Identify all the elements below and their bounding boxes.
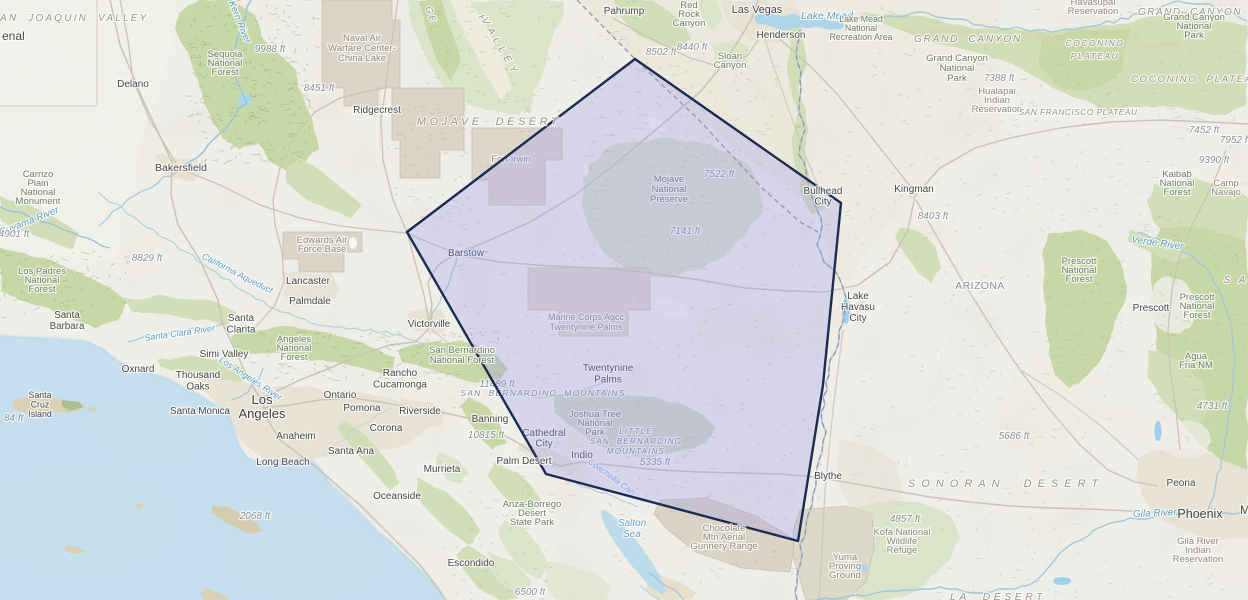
svg-text:AN JOAQUIN VALLEY: AN JOAQUIN VALLEY: [0, 13, 149, 24]
svg-text:6500 ft: 6500 ft: [515, 587, 547, 598]
svg-text:PrescottNationalForest: PrescottNationalForest: [1180, 292, 1215, 321]
svg-text:YumaProvingGround: YumaProvingGround: [829, 552, 861, 581]
svg-text:7388 ft: 7388 ft: [984, 73, 1016, 84]
svg-text:COCONINO PLATEAU: COCONINO PLATEAU: [1131, 74, 1248, 85]
svg-text:Edwards AirForce Base: Edwards AirForce Base: [297, 235, 348, 255]
svg-text:5686 ft: 5686 ft: [999, 431, 1031, 442]
svg-text:Banning: Banning: [472, 414, 509, 425]
svg-text:KaibabNationalForest: KaibabNationalForest: [1160, 169, 1195, 198]
svg-text:10815 ft: 10815 ft: [468, 430, 505, 441]
svg-text:S A: S A: [1224, 275, 1248, 286]
svg-text:Escondido: Escondido: [448, 558, 495, 569]
svg-text:HavasupaiReservation: HavasupaiReservation: [1068, 0, 1119, 17]
svg-text:Mes: Mes: [1240, 503, 1248, 517]
svg-text:Pahrump: Pahrump: [604, 6, 645, 17]
svg-text:Kingman: Kingman: [894, 184, 933, 195]
svg-text:LA DESERT: LA DESERT: [950, 591, 1046, 600]
svg-text:CampNavajo: CampNavajo: [1211, 178, 1241, 198]
svg-text:SantaClarita: SantaClarita: [227, 313, 256, 336]
svg-text:AngelesNationalForest: AngelesNationalForest: [277, 334, 312, 363]
svg-text:4857 ft: 4857 ft: [890, 514, 922, 525]
svg-text:8451 ft: 8451 ft: [304, 83, 336, 94]
svg-text:Bakersfield: Bakersfield: [155, 162, 207, 174]
svg-text:Palmdale: Palmdale: [289, 296, 331, 307]
svg-text:SequoiaNationalForest: SequoiaNationalForest: [208, 49, 244, 78]
svg-text:enal: enal: [2, 29, 25, 43]
svg-text:SAN FRANCISCO PLATEAU: SAN FRANCISCO PLATEAU: [1019, 107, 1138, 117]
svg-text:PrescottNationalForest: PrescottNationalForest: [1062, 256, 1097, 285]
svg-text:Corona: Corona: [370, 423, 403, 434]
svg-text:7952 ft: 7952 ft: [1220, 135, 1248, 146]
svg-text:Santa Ana: Santa Ana: [328, 446, 375, 457]
svg-text:Lancaster: Lancaster: [286, 276, 331, 287]
svg-text:Prescott: Prescott: [1133, 303, 1170, 314]
svg-text:9390 ft: 9390 ft: [1199, 155, 1231, 166]
svg-text:Riverside: Riverside: [399, 406, 441, 417]
svg-text:84 ft: 84 ft: [4, 413, 25, 424]
svg-text:SloanCanyon: SloanCanyon: [714, 51, 747, 71]
svg-text:8502 ft: 8502 ft: [646, 47, 678, 58]
svg-text:Palm Desert: Palm Desert: [496, 456, 551, 467]
svg-text:Henderson: Henderson: [757, 30, 806, 41]
svg-text:Las Vegas: Las Vegas: [732, 4, 783, 16]
svg-text:Murrieta: Murrieta: [424, 464, 461, 475]
svg-text:Ridgecrest: Ridgecrest: [353, 105, 401, 116]
svg-text:Oceanside: Oceanside: [373, 491, 421, 502]
svg-text:Victorville: Victorville: [408, 319, 451, 330]
svg-text:Gila River: Gila River: [1133, 507, 1178, 520]
svg-text:ARIZONA: ARIZONA: [955, 280, 1004, 292]
svg-text:Anaheim: Anaheim: [276, 431, 315, 442]
svg-text:GRAND CANYON: GRAND CANYON: [914, 34, 1022, 45]
svg-text:MOJAVE DESERT: MOJAVE DESERT: [417, 116, 561, 128]
svg-text:Peoria: Peoria: [1167, 478, 1196, 489]
svg-text:Pomona: Pomona: [343, 403, 381, 414]
svg-text:San BernardinoNational Forest: San BernardinoNational Forest: [429, 345, 495, 366]
svg-text:8403 ft: 8403 ft: [918, 211, 950, 222]
svg-text:8440 ft: 8440 ft: [677, 42, 709, 53]
svg-text:SONORAN DESERT: SONORAN DESERT: [908, 478, 1104, 490]
svg-text:SantaCruzIsland: SantaCruzIsland: [28, 390, 52, 419]
svg-text:Long Beach: Long Beach: [256, 457, 309, 468]
svg-text:Blythe: Blythe: [814, 471, 842, 482]
svg-text:Delano: Delano: [117, 79, 149, 90]
svg-text:8829 ft: 8829 ft: [132, 253, 164, 264]
svg-text:4901 ft: 4901 ft: [0, 229, 31, 240]
svg-text:4731 ft: 4731 ft: [1197, 401, 1229, 412]
svg-text:2068 ft: 2068 ft: [239, 511, 272, 522]
svg-text:SantaBarbara: SantaBarbara: [50, 310, 85, 332]
svg-text:9988 ft: 9988 ft: [255, 44, 287, 55]
svg-text:7452 ft: 7452 ft: [1189, 125, 1221, 136]
svg-text:Phoenix: Phoenix: [1177, 507, 1223, 521]
svg-text:Ontario: Ontario: [324, 390, 357, 401]
svg-text:Santa Monica: Santa Monica: [170, 406, 230, 417]
svg-text:Oxnard: Oxnard: [122, 364, 155, 375]
